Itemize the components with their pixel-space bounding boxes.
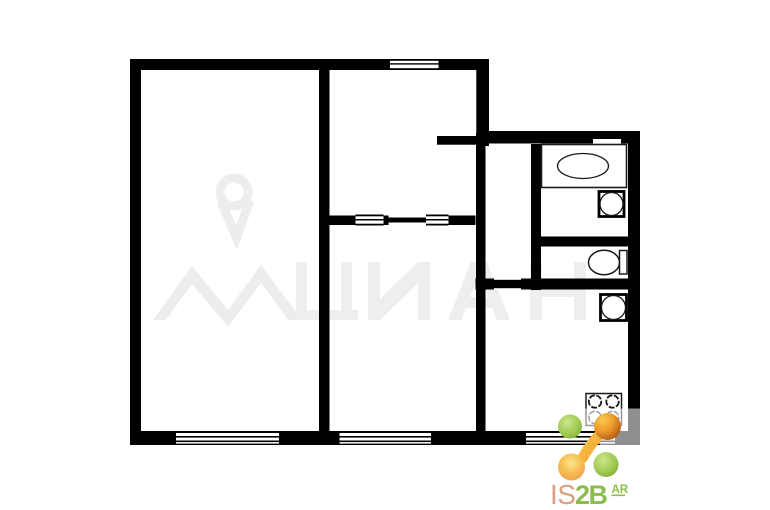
svg-text:2B: 2B <box>575 480 608 510</box>
svg-text:AR: AR <box>612 484 629 496</box>
svg-text:IS: IS <box>550 479 575 510</box>
